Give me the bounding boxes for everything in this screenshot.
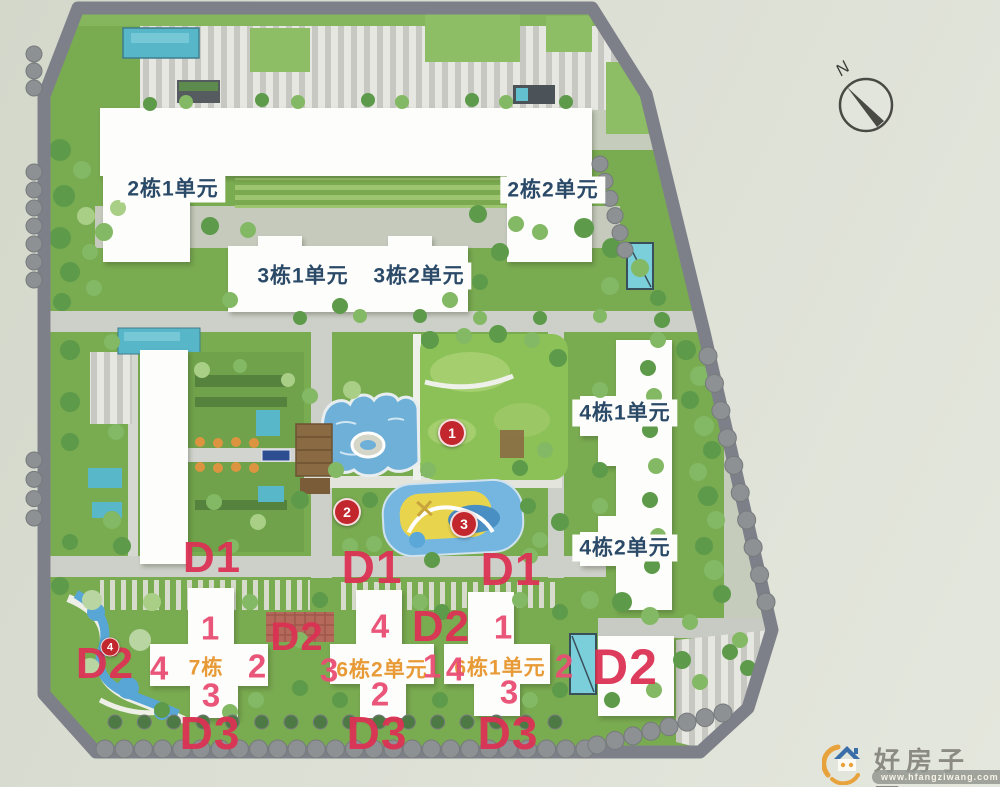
site-map: N [0,0,1000,787]
ground-layer [44,12,770,760]
compass-icon: N [832,57,892,131]
site-plan-image: N 2栋1单元 2栋2单元 3栋1单元 3栋2单元 4栋1单元 4栋2单元 7栋… [0,0,1000,787]
playground [381,478,525,557]
clubhouse [296,424,332,494]
central-lawn [420,334,568,480]
compass-north-label: N [832,57,854,80]
